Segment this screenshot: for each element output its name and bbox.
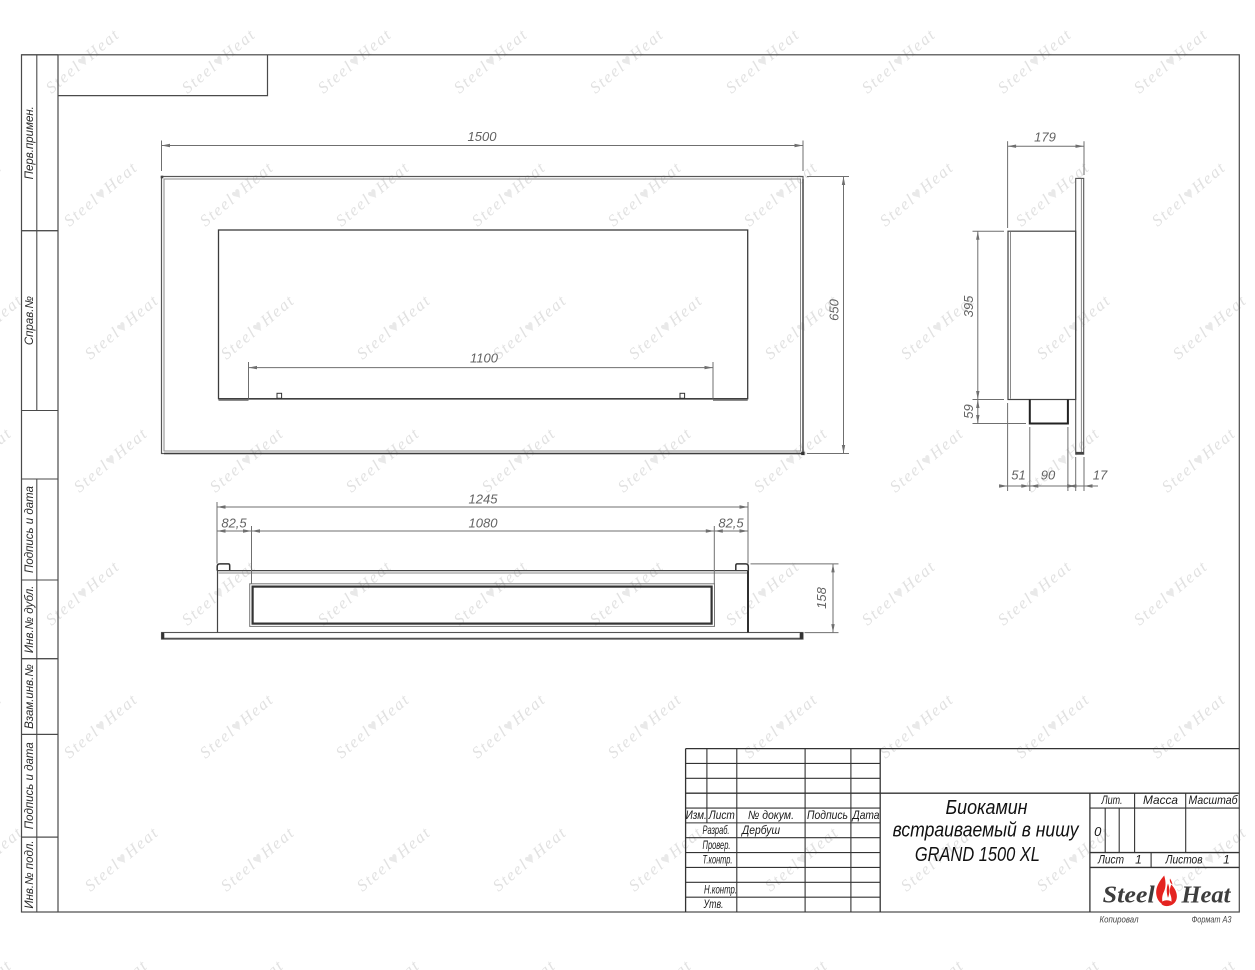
svg-text:650: 650 — [827, 298, 842, 320]
svg-text:Провер.: Провер. — [703, 838, 731, 852]
svg-text:встраиваемый в нишу: встраиваемый в нишу — [893, 820, 1080, 842]
svg-text:1500: 1500 — [468, 129, 498, 144]
svg-text:51: 51 — [1011, 468, 1025, 483]
svg-text:Масса: Масса — [1143, 793, 1178, 807]
svg-text:82,5: 82,5 — [718, 516, 744, 531]
svg-text:1: 1 — [1223, 853, 1230, 867]
svg-text:158: 158 — [814, 586, 829, 608]
svg-text:GRAND 1500 XL: GRAND 1500 XL — [915, 844, 1040, 866]
svg-text:Heat: Heat — [1180, 883, 1231, 909]
svg-text:Лит.: Лит. — [1101, 793, 1123, 807]
svg-text:Дербуш: Дербуш — [740, 823, 780, 837]
svg-text:Формат А3: Формат А3 — [1192, 915, 1233, 926]
svg-text:Изм.: Изм. — [686, 808, 707, 822]
svg-text:Steel: Steel — [1103, 883, 1155, 909]
svg-text:59: 59 — [961, 404, 976, 418]
svg-text:Справ.№: Справ.№ — [24, 296, 36, 346]
svg-text:1100: 1100 — [470, 351, 499, 366]
svg-text:Н.контр.: Н.контр. — [704, 882, 737, 896]
svg-text:0: 0 — [1094, 824, 1102, 839]
svg-text:Подпись и дата: Подпись и дата — [24, 742, 36, 829]
svg-text:Разраб.: Разраб. — [703, 823, 730, 837]
svg-text:Лист: Лист — [1097, 853, 1124, 867]
svg-text:Масштаб: Масштаб — [1189, 793, 1239, 807]
svg-text:90: 90 — [1041, 468, 1056, 483]
svg-text:Копировал: Копировал — [1100, 915, 1140, 926]
svg-text:17: 17 — [1093, 468, 1108, 483]
svg-text:Биокамин: Биокамин — [946, 797, 1028, 819]
svg-text:Листов: Листов — [1165, 853, 1203, 867]
svg-text:Т.контр.: Т.контр. — [703, 853, 733, 867]
svg-text:179: 179 — [1034, 130, 1056, 145]
svg-text:82,5: 82,5 — [221, 516, 247, 531]
svg-text:1080: 1080 — [469, 516, 499, 531]
svg-text:Дата: Дата — [851, 808, 880, 822]
svg-text:1: 1 — [1135, 853, 1142, 867]
svg-text:Подпись: Подпись — [807, 808, 848, 822]
svg-text:395: 395 — [961, 295, 976, 317]
svg-text:Взам.инв.№: Взам.инв.№ — [24, 664, 36, 729]
svg-text:№ докум.: № докум. — [748, 808, 794, 822]
svg-text:Подпись и дата: Подпись и дата — [24, 486, 36, 573]
svg-text:Инв.№ дубл.: Инв.№ дубл. — [24, 586, 36, 654]
svg-text:1245: 1245 — [469, 492, 499, 507]
svg-text:Инв.№ подл.: Инв.№ подл. — [24, 840, 36, 908]
svg-text:Утв.: Утв. — [703, 897, 724, 911]
svg-text:Перв.примен.: Перв.примен. — [24, 106, 36, 179]
svg-text:Лист: Лист — [708, 808, 735, 822]
